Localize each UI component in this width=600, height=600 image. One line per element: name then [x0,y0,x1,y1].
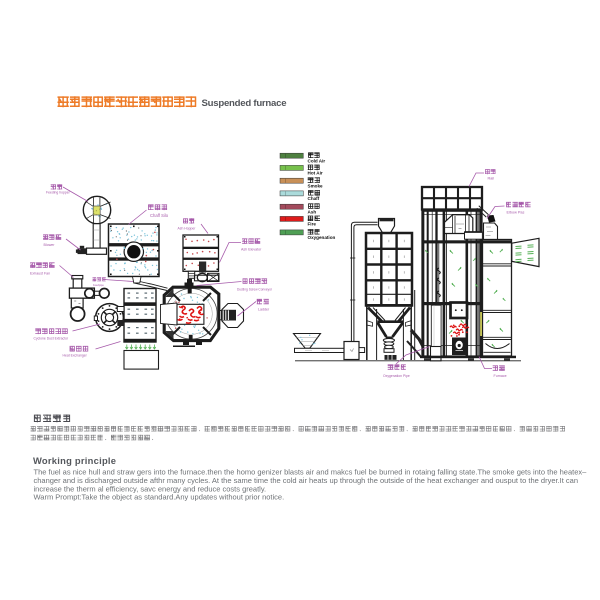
svg-text:Cold Air: Cold Air [308,159,326,164]
svg-text:Ladder: Ladder [258,308,270,312]
svg-text:Rail: Rail [488,177,495,181]
svg-text:Chaff: Chaff [308,196,320,201]
svg-text:Feeding hopper: Feeding hopper [46,190,71,194]
svg-text:Smoke: Smoke [308,184,324,189]
svg-text:Cyclone Dust Extractor: Cyclone Dust Extractor [34,337,70,341]
svg-text:Exhaust Fan: Exhaust Fan [30,272,50,276]
svg-text:Dusting Screw Conveyor: Dusting Screw Conveyor [237,288,273,292]
svg-text:Ash Hopper: Ash Hopper [178,227,197,231]
svg-text:Heat Exchanger: Heat Exchanger [63,354,88,358]
svg-text:Ash Elevator: Ash Elevator [241,248,262,252]
svg-text:Working principle: Working principle [33,455,116,466]
svg-text:Ash: Ash [308,210,317,215]
svg-text:Furnace: Furnace [494,374,507,378]
svg-text:Feedpipe: Feedpipe [93,283,104,287]
svg-text:Suspended furnace: Suspended furnace [202,98,287,109]
svg-text:Blower: Blower [44,243,56,247]
svg-text:Oxygenation Pipe: Oxygenation Pipe [383,374,410,378]
svg-text:Elbow Pas: Elbow Pas [507,211,525,215]
svg-text:Fire: Fire [308,222,317,227]
svg-text:Oxygenation: Oxygenation [308,235,336,240]
svg-text:Warm Prompt:Take the object: Warm Prompt:Take the object as standard.… [34,493,285,502]
svg-text:Chaff Silo: Chaff Silo [150,213,169,218]
svg-text:Hot Air: Hot Air [308,171,323,176]
